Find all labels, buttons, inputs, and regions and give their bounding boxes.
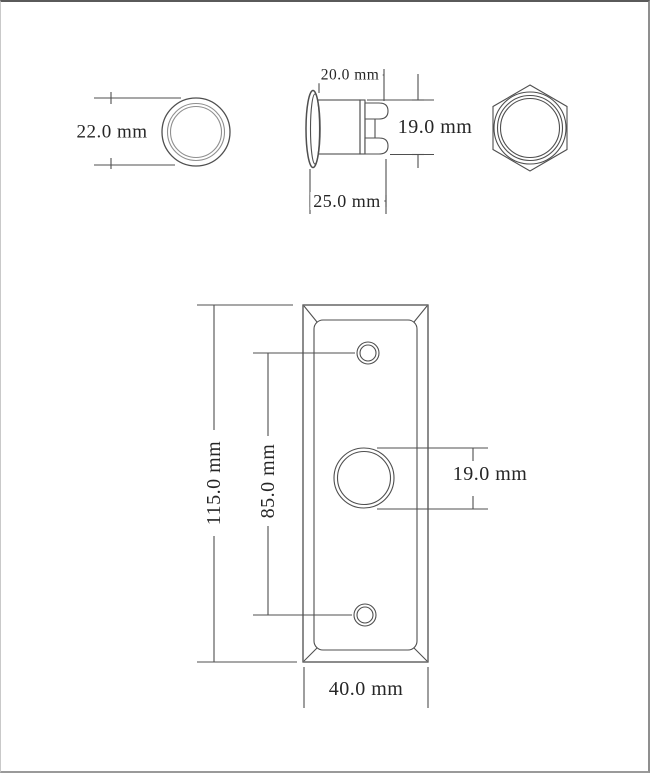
side-pin-upper xyxy=(365,103,388,119)
front-outer-circle xyxy=(162,98,230,166)
front-bezel-inner xyxy=(171,107,222,158)
nut-view xyxy=(493,85,567,171)
plate-bevel-tr xyxy=(414,306,427,322)
dimension-label-plate-height: 115.0 mm xyxy=(204,438,224,528)
plate-bevel-br xyxy=(414,648,427,661)
nut-circle-middle xyxy=(498,96,563,161)
front-bezel-outer xyxy=(168,104,225,161)
dimension-label-side-total-length: 25.0 mm xyxy=(310,192,384,210)
plate-bevel-tl xyxy=(304,306,317,322)
dimension-label-side-bezel-depth: 20.0 mm xyxy=(318,67,383,83)
nut-hexagon xyxy=(493,85,567,171)
dimension-label-plate-width: 40.0 mm xyxy=(326,679,407,699)
side-pin-lower xyxy=(365,138,388,154)
dimension-label-plate-hole-spacing: 85.0 mm xyxy=(258,441,278,522)
plate-bevel-bl xyxy=(304,648,317,661)
dimension-label-plate-button-hole: 19.0 mm xyxy=(450,464,531,484)
nut-circle-inner xyxy=(501,99,560,158)
nut-circle-outer xyxy=(494,92,566,164)
dimension-drawing: 22.0 mm 20.0 mm 25.0 mm 19.0 mm 115.0 mm… xyxy=(0,0,650,773)
dimension-label-side-body-diameter: 19.0 mm xyxy=(395,117,476,137)
dimension-label-front-diameter: 22.0 mm xyxy=(73,123,150,142)
drawing-linework xyxy=(1,2,648,771)
plate-view xyxy=(197,305,488,708)
plate-button-hole-outer xyxy=(334,448,394,508)
side-body xyxy=(317,100,360,154)
side-washer xyxy=(360,100,365,154)
